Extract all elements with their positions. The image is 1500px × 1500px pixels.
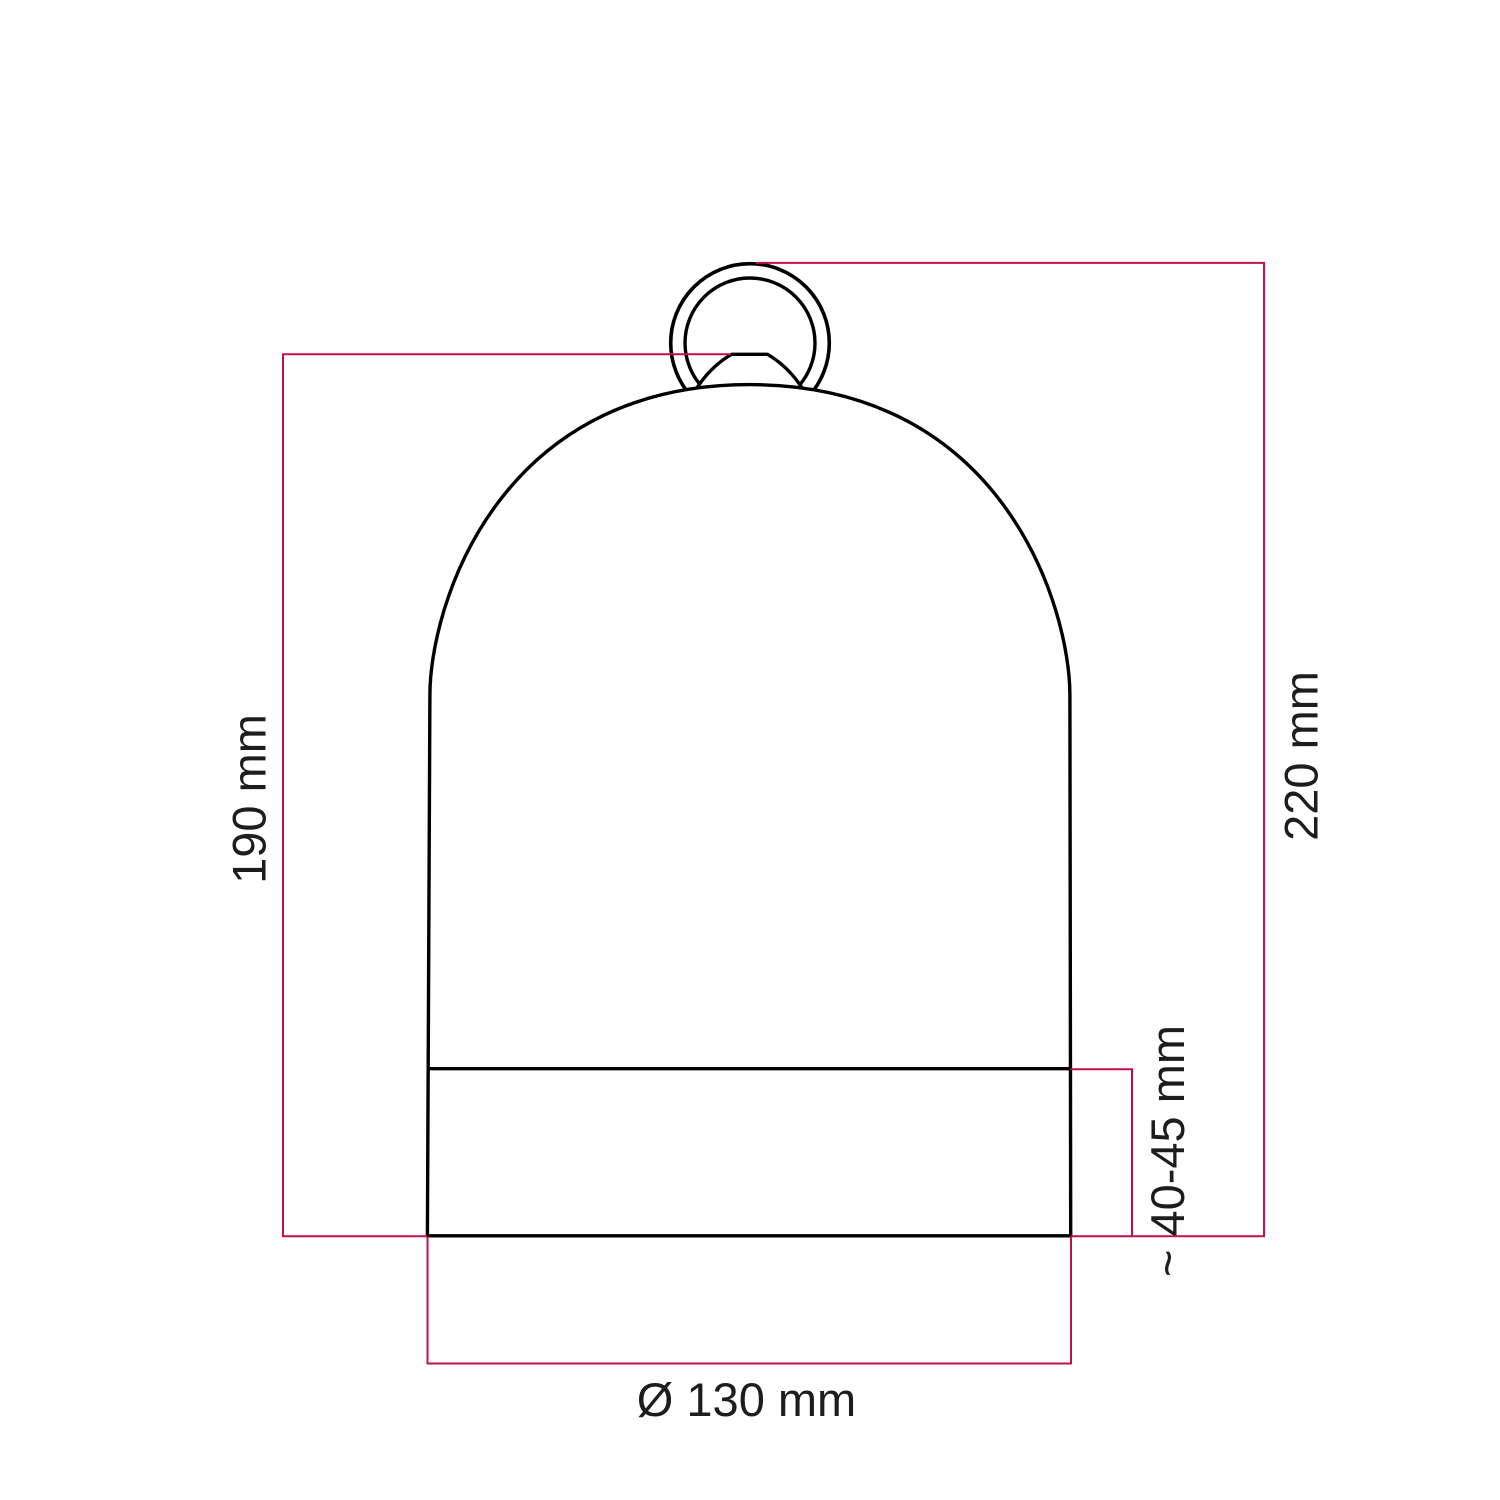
svg-text:190 mm: 190 mm	[223, 714, 276, 884]
svg-text:220 mm: 220 mm	[1275, 671, 1328, 841]
svg-text:~ 40-45 mm: ~ 40-45 mm	[1141, 1025, 1194, 1277]
svg-text:Ø 130 mm: Ø 130 mm	[637, 1373, 856, 1426]
